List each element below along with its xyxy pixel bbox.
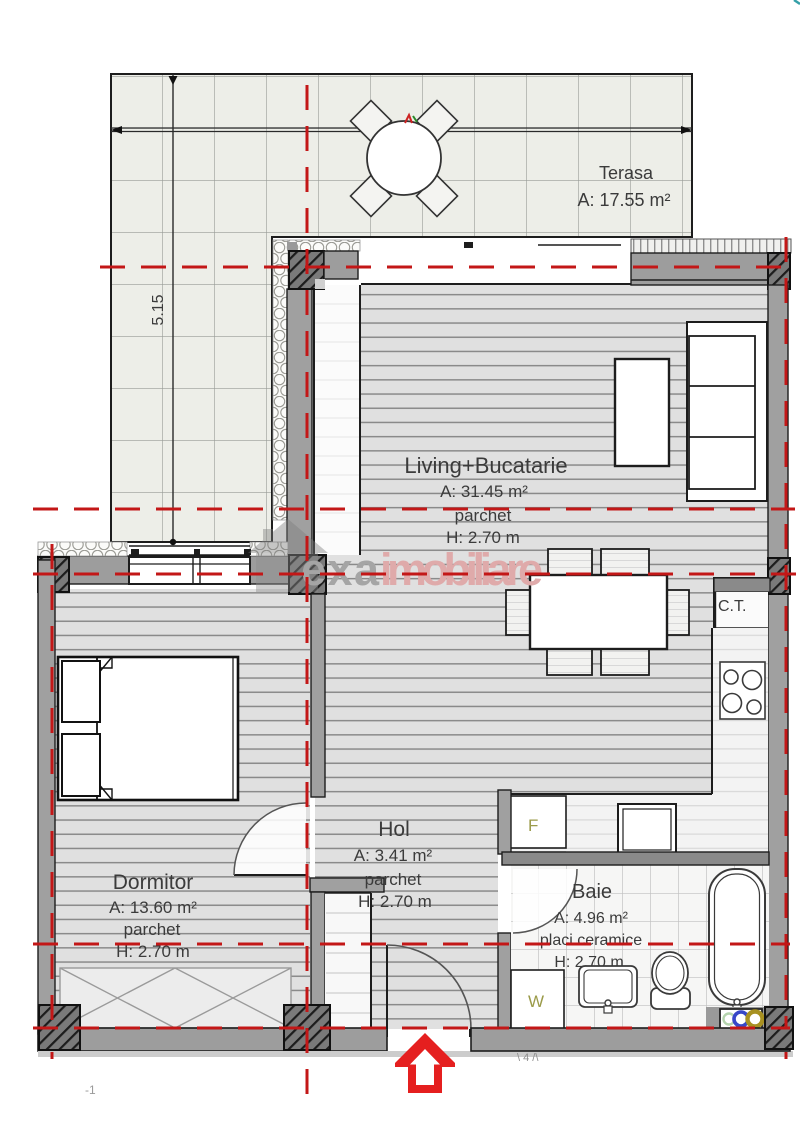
svg-text:A: 3.41 m²: A: 3.41 m² <box>354 846 433 865</box>
svg-text:exa: exa <box>301 544 380 595</box>
svg-text:parchet: parchet <box>365 870 422 889</box>
svg-text:Living+Bucatarie: Living+Bucatarie <box>404 453 567 478</box>
svg-text:Hol: Hol <box>378 818 410 841</box>
svg-text:H: 2.70 m: H: 2.70 m <box>358 892 432 911</box>
svg-text:parchet: parchet <box>124 920 181 939</box>
svg-text:Terasa: Terasa <box>599 163 654 183</box>
svg-text:A: 17.55 m²: A: 17.55 m² <box>577 190 670 210</box>
svg-text:A: 4.96 m²: A: 4.96 m² <box>554 910 628 927</box>
svg-text:-1: -1 <box>85 1083 96 1097</box>
svg-text:imobiliare: imobiliare <box>380 544 543 595</box>
svg-text:\ 4 /\: \ 4 /\ <box>517 1052 539 1064</box>
svg-text:5.15: 5.15 <box>150 294 167 325</box>
svg-text:A: 31.45 m²: A: 31.45 m² <box>440 482 528 501</box>
svg-text:placi ceramice: placi ceramice <box>540 932 642 949</box>
svg-text:W: W <box>528 992 544 1011</box>
svg-text:F: F <box>528 816 538 835</box>
svg-text:C.T.: C.T. <box>718 598 746 615</box>
svg-text:Baie: Baie <box>572 881 612 903</box>
svg-text:A: 13.60 m²: A: 13.60 m² <box>109 898 197 917</box>
svg-text:Dormitor: Dormitor <box>113 871 194 894</box>
